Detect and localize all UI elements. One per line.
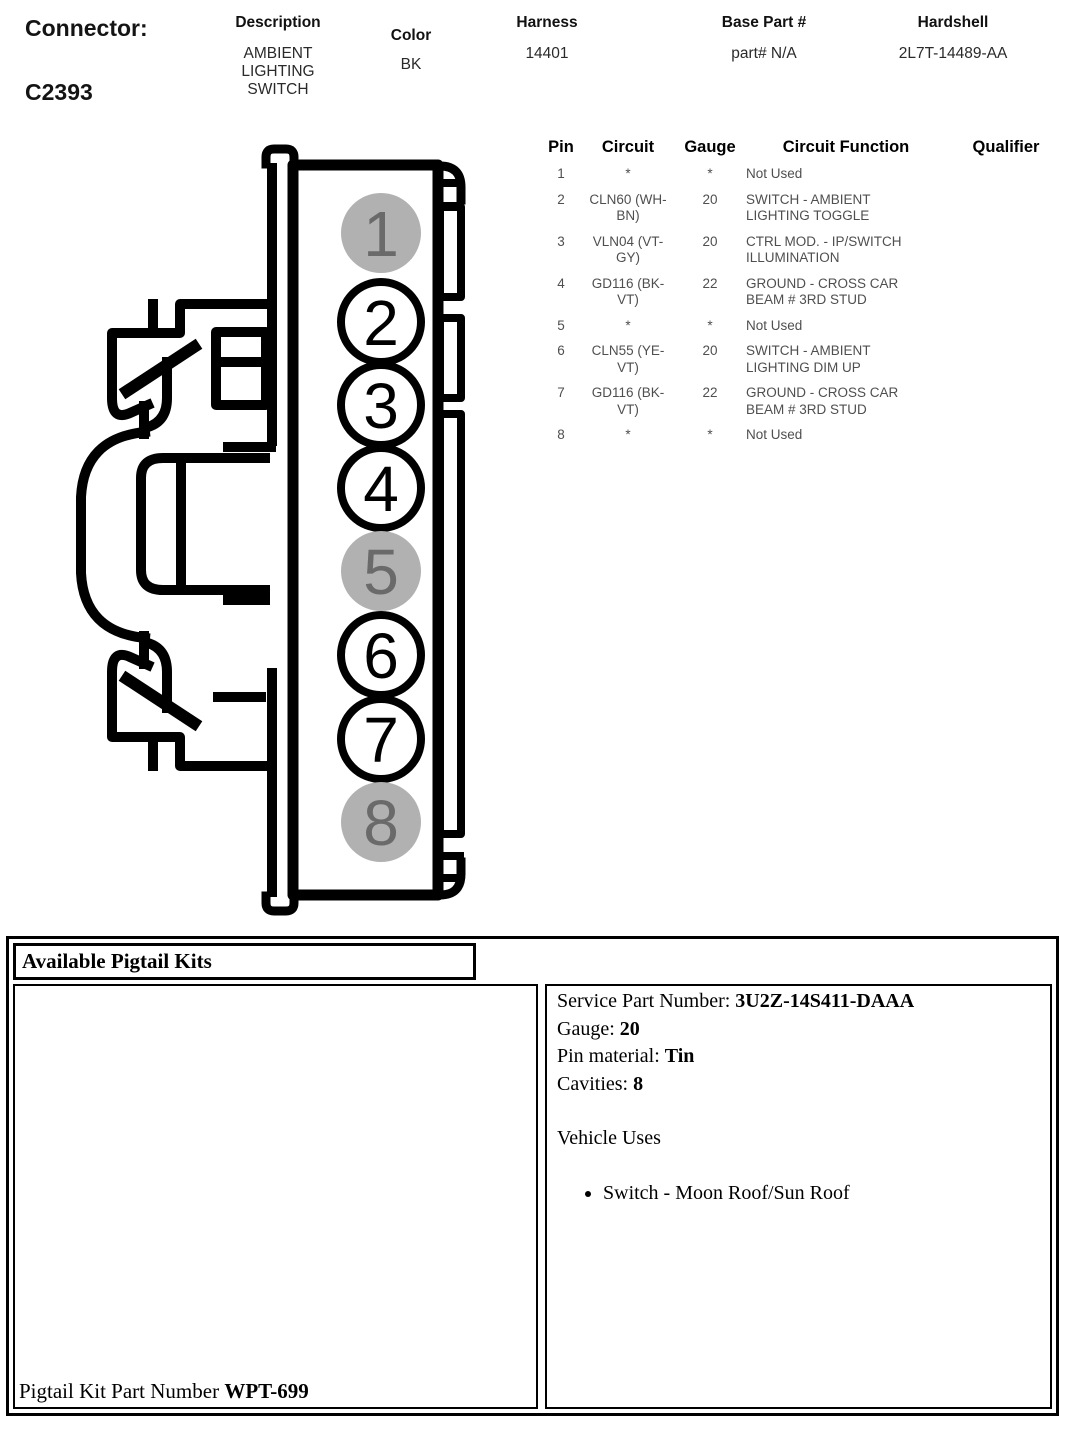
pigtail-kit-cell: Pigtail Kit Part Number WPT-699	[13, 984, 538, 1409]
pin-6: 6	[341, 615, 421, 695]
pin-3: 3	[341, 365, 421, 445]
pin-material-value: Tin	[665, 1045, 695, 1067]
svg-text:5: 5	[363, 536, 399, 608]
grommet-bulge	[81, 432, 145, 638]
table-row: 4 GD116 (BK-VT) 22 GROUND - CROSS CAR BE…	[540, 272, 1066, 314]
hardshell-value: 2L7T-14489-AA	[878, 45, 1028, 63]
vehicle-use-item: Switch - Moon Roof/Sun Roof	[603, 1180, 1040, 1207]
shell-tab-3	[440, 414, 461, 834]
pin-5: 5	[341, 531, 421, 611]
table-row: 5 * * Not Used	[540, 314, 1066, 340]
kit-label: Pigtail Kit Part Number	[19, 1379, 219, 1403]
pigtail-kits-box: Available Pigtail Kits Pigtail Kit Part …	[6, 936, 1059, 1416]
shell-tab-2	[440, 318, 461, 398]
header-col-hardshell: Hardshell 2L7T-14489-AA	[878, 14, 1028, 63]
table-row: 7 GD116 (BK-VT) 22 GROUND - CROSS CAR BE…	[540, 381, 1066, 423]
pin-circuit-table: Pin Circuit Gauge Circuit Function Quali…	[540, 138, 1066, 449]
table-row: 2 CLN60 (WH-BN) 20 SWITCH - AMBIENT LIGH…	[540, 188, 1066, 230]
shell-tab-1	[440, 207, 461, 297]
col-header-qualifier: Qualifier	[946, 138, 1066, 162]
pin-7: 7	[341, 699, 421, 779]
pin-2: 2	[341, 282, 421, 362]
body-bottom-tab	[266, 896, 294, 911]
header-col-base-part: Base Part # part# N/A	[692, 14, 836, 63]
service-part-number: 3U2Z-14S411-DAAA	[735, 990, 914, 1012]
pigtail-kit-part-number: Pigtail Kit Part Number WPT-699	[19, 1379, 309, 1404]
grommet-block	[141, 458, 265, 590]
latch-window	[216, 332, 266, 405]
pin-material-line: Pin material: Tin	[557, 1043, 1040, 1071]
vehicle-uses-label: Vehicle Uses	[557, 1125, 1040, 1153]
svg-text:6: 6	[363, 620, 399, 692]
svg-text:7: 7	[363, 704, 399, 776]
col-header-gauge: Gauge	[674, 138, 746, 162]
body-top-tab	[266, 149, 294, 164]
lower-latch	[112, 655, 268, 766]
svg-text:3: 3	[363, 370, 399, 442]
table-row: 8 * * Not Used	[540, 423, 1066, 449]
base-part-value: part# N/A	[692, 45, 836, 63]
vehicle-uses-list: Switch - Moon Roof/Sun Roof	[557, 1180, 1040, 1207]
pin-4: 4	[341, 448, 421, 528]
table-row: 6 CLN55 (YE-VT) 20 SWITCH - AMBIENT LIGH…	[540, 339, 1066, 381]
lower-latch-lever	[127, 679, 194, 723]
cavities-value: 8	[633, 1073, 643, 1095]
kit-number: WPT-699	[224, 1379, 308, 1403]
svg-text:4: 4	[363, 453, 399, 525]
connector-diagram: 1 2 3 4 5 6 7 8	[0, 0, 540, 930]
svg-text:1: 1	[363, 198, 399, 270]
cavities-line: Cavities: 8	[557, 1071, 1040, 1099]
table-row: 3 VLN04 (VT-GY) 20 CTRL MOD. - IP/SWITCH…	[540, 230, 1066, 272]
pin-table-header-row: Pin Circuit Gauge Circuit Function Quali…	[540, 138, 1066, 162]
table-row: 1 * * Not Used	[540, 162, 1066, 188]
base-part-label: Base Part #	[692, 14, 836, 32]
gauge-value: 20	[620, 1018, 640, 1040]
service-part-line: Service Part Number: 3U2Z-14S411-DAAA	[557, 988, 1040, 1016]
pigtail-kits-title: Available Pigtail Kits	[13, 943, 476, 980]
upper-latch-lever	[127, 347, 194, 391]
svg-text:2: 2	[363, 287, 399, 359]
gauge-line: Gauge: 20	[557, 1016, 1040, 1044]
col-header-pin: Pin	[540, 138, 582, 162]
svg-text:8: 8	[363, 787, 399, 859]
col-header-circuit: Circuit	[582, 138, 674, 162]
pin-1: 1	[341, 193, 421, 273]
col-header-function: Circuit Function	[746, 138, 946, 162]
pin-8: 8	[341, 782, 421, 862]
service-part-cell: Service Part Number: 3U2Z-14S411-DAAA Ga…	[545, 984, 1052, 1409]
hardshell-label: Hardshell	[878, 14, 1028, 32]
